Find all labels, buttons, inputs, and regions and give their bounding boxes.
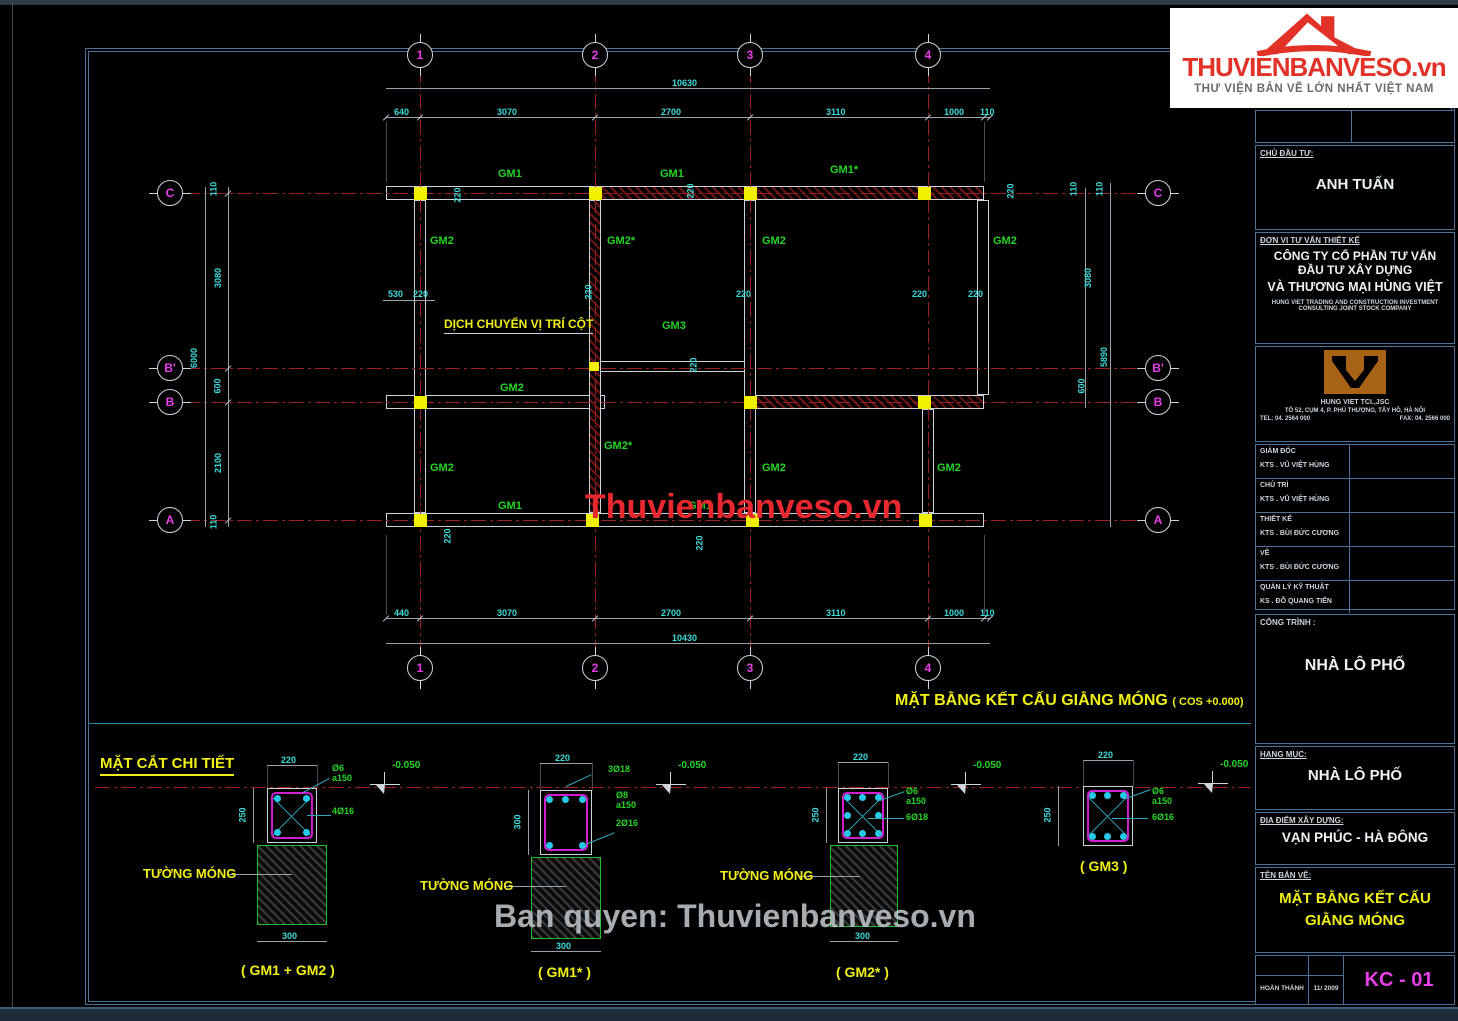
- beam-label: GM2: [500, 382, 524, 394]
- dim-line: [838, 762, 888, 763]
- grid-bubble-rowA-right: A: [1145, 507, 1171, 533]
- tb-drawing-name-section: TÊN BẢN VẼ: MẶT BẰNG KẾT CẤU GIẰNG MÓNG: [1255, 867, 1455, 953]
- grid-label: A: [1154, 513, 1163, 527]
- leader-line: [505, 886, 566, 887]
- watermark-bottom: Ban quyen: Thuvienbanveso.vn: [494, 898, 976, 935]
- rebar-dot: [844, 830, 851, 837]
- roof-icon: [1244, 10, 1384, 56]
- plan-title: MẶT BẰNG KẾT CẤU GIẰNG MÓNG ( COS +0.000…: [895, 692, 1244, 710]
- extension-line: [267, 765, 268, 788]
- detail-caption: ( GM3 ): [1080, 858, 1127, 874]
- rebar-dot: [274, 795, 281, 802]
- staff-name: KTS . BÙI ĐỨC CƯƠNG: [1260, 530, 1349, 537]
- grid-label: 1: [417, 661, 424, 675]
- extension-line: [984, 535, 985, 615]
- logo-tagline: THƯ VIỆN BẢN VẼ LỚN NHẤT VIỆT NAM: [1194, 83, 1434, 95]
- detail-caption: ( GM1* ): [538, 964, 591, 980]
- plan-detail-divider: [89, 723, 1251, 724]
- firm-fax: FAX: 04. 2566 000: [1400, 416, 1450, 422]
- dim-text: 110: [980, 608, 995, 618]
- signature-cell: [1350, 581, 1454, 613]
- grid-label: 3: [747, 48, 754, 62]
- dim-line-right-total: [1110, 183, 1111, 527]
- dim-line: [1058, 786, 1059, 846]
- beam-label: GM2: [430, 462, 454, 474]
- dim-text: 220: [281, 755, 296, 765]
- dim-line: [830, 941, 898, 942]
- extension-line: [540, 763, 541, 790]
- dim-text: 1000: [944, 107, 964, 117]
- dim-text: 2700: [661, 608, 681, 618]
- dim-text: 3080: [1083, 268, 1093, 288]
- dim-text: 220: [413, 289, 428, 299]
- column-marker: [919, 514, 932, 527]
- dim-line-left-total: [205, 187, 206, 527]
- rebar-dot: [1089, 833, 1096, 840]
- beam-label: GM2: [762, 462, 786, 474]
- watermark-center: Thuvienbanveso.vn: [585, 488, 902, 527]
- company-line-2: ĐẦU TƯ XÂY DỰNG: [1256, 263, 1454, 277]
- signature-cell: [1350, 445, 1454, 478]
- rebar-dot: [844, 794, 851, 801]
- dim-line: [1083, 760, 1133, 761]
- dim-text: 300: [282, 931, 297, 941]
- level-text: -0.050: [678, 760, 706, 771]
- beam-label: GM3: [662, 320, 686, 332]
- footer-subline: [1309, 956, 1343, 976]
- grid-bubble-col4-top: 4: [915, 42, 941, 68]
- level-mark-icon: [965, 772, 966, 785]
- grid-bubble-col2-top: 2: [582, 42, 608, 68]
- stirrup-text: Ø6: [906, 786, 918, 796]
- signature-cell: [1350, 547, 1454, 580]
- wall-label: TƯỜNG MÓNG: [720, 868, 813, 883]
- company-en-line-2: CONSULTING JOINT STOCK COMPANY: [1256, 306, 1454, 312]
- beam-label: GM1: [498, 500, 522, 512]
- completed-date: 11/ 2009: [1309, 985, 1343, 992]
- column-marker: [589, 362, 599, 371]
- location-label: ĐỊA ĐIỂM XÂY DỰNG:: [1256, 813, 1454, 825]
- beam-label: GM1: [498, 168, 522, 180]
- location-name: VẠN PHÚC - HÀ ĐÔNG: [1256, 830, 1454, 845]
- dim-line: [826, 788, 827, 843]
- rebar-dot: [546, 842, 553, 849]
- staff-row: CHỦ TRÌKTS . VŨ VIỆT HÙNG: [1256, 478, 1454, 512]
- tb-consultant-section: ĐƠN VỊ TƯ VẤN THIẾT KẾ CÔNG TY CỔ PHẦN T…: [1255, 232, 1455, 344]
- investor-name: ANH TUẤN: [1256, 176, 1454, 193]
- dim-text: 220: [736, 289, 751, 299]
- level-mark-icon: [1212, 771, 1213, 784]
- dim-text: 440: [394, 608, 409, 618]
- dim-text: 220: [453, 187, 463, 202]
- detail-caption: ( GM1 + GM2 ): [241, 962, 335, 978]
- stirrup-text: Ø8: [616, 790, 628, 800]
- level-mark-icon: [670, 772, 671, 785]
- beam-label: GM1: [660, 168, 684, 180]
- rebar-dot: [1104, 792, 1111, 799]
- sheet-code: KC - 01: [1365, 969, 1434, 992]
- grid-label: B': [1152, 361, 1164, 375]
- beam-label: GM2: [937, 462, 961, 474]
- footer-subline: [1256, 956, 1308, 976]
- staff-row: GIÁM ĐỐCKTS . VŨ VIỆT HÙNG: [1256, 445, 1454, 478]
- staff-role: THIẾT KẾ: [1260, 516, 1349, 523]
- tb-staff-table: GIÁM ĐỐCKTS . VŨ VIỆT HÙNG CHỦ TRÌKTS . …: [1255, 444, 1455, 610]
- item-name: NHÀ LÔ PHỐ: [1256, 767, 1454, 784]
- grid-bubble-col3-top: 3: [737, 42, 763, 68]
- grid-label: C: [166, 186, 175, 200]
- rebar-dot: [579, 796, 586, 803]
- logo-brand-main: THUVIENBANVESO: [1182, 52, 1411, 82]
- drawing-name-label: TÊN BẢN VẼ:: [1256, 868, 1454, 880]
- completed-cell: HOÀN THÀNH: [1256, 956, 1309, 1004]
- staff-name: KS . ĐỖ QUANG TIẾN: [1260, 598, 1349, 605]
- rebar-dot: [274, 829, 281, 836]
- date-cell: 11/ 2009: [1309, 956, 1344, 1004]
- firm-address: TỔ 52, CỤM 4, P. PHÚ THƯỢNG, TÂY HỒ, HÀ …: [1256, 408, 1454, 414]
- stirrup-spacing-text: a150: [332, 773, 352, 783]
- rebar-dot: [859, 830, 866, 837]
- grid-bubble-col2-bottom: 2: [582, 655, 608, 681]
- dim-text: 600: [213, 378, 223, 393]
- item-label: HẠNG MỤC:: [1256, 747, 1454, 759]
- title-block: CHỦ ĐẦU TƯ: ANH TUẤN ĐƠN VỊ TƯ VẤN THIẾT…: [1255, 110, 1455, 1005]
- axis-col-3: [750, 68, 751, 653]
- tb-top-cell-divider: [1351, 111, 1352, 142]
- grid-bubble-col4-bottom: 4: [915, 655, 941, 681]
- detail-caption: ( GM2* ): [836, 964, 889, 980]
- dim-text: 220: [968, 289, 983, 299]
- grid-bubble-rowC-right: C: [1145, 180, 1171, 206]
- dim-text: 3070: [497, 107, 517, 117]
- grid-bubble-rowBp-right: B': [1145, 355, 1171, 381]
- dim-line: [540, 763, 592, 764]
- grid-label: B: [166, 395, 175, 409]
- axis-col-2: [595, 68, 596, 653]
- wall-label: TƯỜNG MÓNG: [420, 878, 513, 893]
- grid-bubble-rowA-left: A: [157, 507, 183, 533]
- details-header: MẶT CẮT CHI TIẾT: [100, 755, 234, 776]
- firm-logo-icon: [1324, 350, 1386, 399]
- dim-text: 6000: [189, 348, 199, 368]
- rebar-dot: [1104, 833, 1111, 840]
- plan-title-text: MẶT BẰNG KẾT CẤU GIẰNG MÓNG: [895, 692, 1168, 709]
- axis-row-C: [185, 193, 1140, 194]
- stirrup-spacing-text: a150: [906, 796, 926, 806]
- column-marker: [414, 396, 427, 409]
- dim-text: 110: [980, 107, 995, 117]
- dim-text: 3110: [826, 107, 846, 117]
- dim-text: 300: [513, 814, 523, 829]
- left-edge-line: [12, 0, 13, 1007]
- grid-label: 2: [592, 48, 599, 62]
- dim-line: [257, 941, 327, 942]
- staff-name: KTS . BÙI ĐỨC CƯƠNG: [1260, 564, 1349, 571]
- extension-line: [386, 535, 387, 615]
- extension-line: [1133, 760, 1134, 786]
- stirrup-spacing-text: a150: [1152, 796, 1172, 806]
- column-marker: [414, 187, 427, 200]
- dim-line: [267, 765, 317, 766]
- dim-text: 220: [584, 284, 594, 299]
- level-text: -0.050: [1220, 759, 1248, 770]
- dim-line-530: [383, 300, 435, 301]
- dim-text: 220: [1006, 183, 1016, 198]
- tb-footer-row: HOÀN THÀNH 11/ 2009 KC - 01: [1255, 955, 1455, 1005]
- beam-label: GM2: [993, 235, 1017, 247]
- dim-text: 300: [556, 941, 571, 951]
- dim-text: 1000: [944, 608, 964, 618]
- dim-text: 5890: [1099, 347, 1109, 367]
- rebar-dot: [844, 812, 851, 819]
- extension-line: [838, 762, 839, 788]
- grid-bubble-rowC-left: C: [157, 180, 183, 206]
- bottom-bars-text: 2Ø16: [616, 818, 638, 828]
- dim-text: 220: [853, 752, 868, 762]
- rebar-dot: [875, 830, 882, 837]
- dim-line-bottom-total: [386, 643, 990, 644]
- beam-label: GM2: [762, 235, 786, 247]
- tb-firm-section: HUNG VIET TCI.,JSC TỔ 52, CỤM 4, P. PHÚ …: [1255, 346, 1455, 442]
- grid-bubble-rowBp-left: B': [157, 355, 183, 381]
- signature-cell: [1350, 513, 1454, 546]
- firm-short-name: HUNG VIET TCI.,JSC: [1256, 399, 1454, 406]
- grid-label: B': [164, 361, 176, 375]
- top-window-strip: [0, 0, 1458, 5]
- dim-text: 110: [208, 515, 218, 530]
- grid-label: B: [1154, 395, 1163, 409]
- stirrup-spacing-text: a150: [616, 800, 636, 810]
- rebar-dot: [546, 796, 553, 803]
- dim-line: [531, 951, 601, 952]
- grid-label: 4: [925, 661, 932, 675]
- dim-text: 250: [1043, 807, 1053, 822]
- dim-text: 3110: [826, 608, 846, 618]
- extension-line: [984, 122, 985, 182]
- tb-project-section: CÔNG TRÌNH : NHÀ LÔ PHỐ: [1255, 614, 1455, 744]
- level-mark-icon: [384, 772, 385, 785]
- beam-label: GM2*: [604, 440, 632, 452]
- column-marker: [414, 514, 427, 527]
- dim-line-right-segments: [1085, 188, 1086, 408]
- dim-text: 220: [555, 753, 570, 763]
- dim-line: [528, 790, 529, 855]
- dim-line: [253, 788, 254, 843]
- staff-role: QUẢN LÝ KỸ THUẬT: [1260, 584, 1349, 591]
- staff-role: VẼ: [1260, 550, 1349, 557]
- foundation-wall: [257, 845, 327, 925]
- company-line-1: CÔNG TY CỔ PHẦN TƯ VẤN: [1256, 249, 1454, 263]
- dim-text: 2700: [661, 107, 681, 117]
- firm-tel: TEL: 04. 2564 000: [1260, 416, 1310, 422]
- staff-row: QUẢN LÝ KỸ THUẬTKS . ĐỖ QUANG TIẾN: [1256, 580, 1454, 613]
- grid-bubble-col3-bottom: 3: [737, 655, 763, 681]
- tb-location-section: ĐỊA ĐIỂM XÂY DỰNG: VẠN PHÚC - HÀ ĐÔNG: [1255, 812, 1455, 865]
- rebar-dot: [562, 796, 569, 803]
- grid-label: C: [1154, 186, 1163, 200]
- dim-text: 220: [443, 528, 453, 543]
- project-label: CÔNG TRÌNH :: [1256, 615, 1454, 627]
- staff-row: VẼKTS . BÙI ĐỨC CƯƠNG: [1256, 546, 1454, 580]
- dim-line-top-total: [386, 88, 990, 89]
- beam-label: GM2: [430, 235, 454, 247]
- leader-line: [307, 815, 331, 816]
- level-text: -0.050: [392, 760, 420, 771]
- grid-label: 2: [592, 661, 599, 675]
- company-line-3: VÀ THƯƠNG MẠI HÙNG VIỆT: [1256, 280, 1454, 294]
- signature-cell: [1350, 479, 1454, 512]
- main-bars-text: 6Ø18: [906, 812, 928, 822]
- dim-line-bottom-segments: [386, 618, 990, 619]
- tb-top-row: [1255, 110, 1455, 143]
- dim-text: 110: [1068, 182, 1078, 197]
- project-name: NHÀ LÔ PHỐ: [1256, 657, 1454, 675]
- rebar-dot: [859, 794, 866, 801]
- grid-bubble-col1-bottom: 1: [407, 655, 433, 681]
- dim-text: 220: [686, 183, 696, 198]
- dim-text: 530: [388, 289, 403, 299]
- tb-item-section: HẠNG MỤC: NHÀ LÔ PHỐ: [1255, 746, 1455, 810]
- dim-text: 220: [1098, 750, 1113, 760]
- extension-line: [1083, 760, 1084, 786]
- axis-row-B: [185, 402, 1140, 403]
- grid-label: 1: [417, 48, 424, 62]
- beam-label: GM2*: [607, 235, 635, 247]
- rebar-dot: [1089, 792, 1096, 799]
- stirrup-text: Ø6: [1152, 786, 1164, 796]
- main-bars-text: 4Ø16: [332, 806, 354, 816]
- drawing-name-line-1: MẶT BẰNG KẾT CẤU: [1256, 890, 1454, 907]
- dim-text: 250: [238, 807, 248, 822]
- dim-text: 2100: [213, 453, 223, 473]
- logo-brand-text: THUVIENBANVESO.vn: [1182, 54, 1445, 80]
- staff-row: THIẾT KẾKTS . BÙI ĐỨC CƯƠNG: [1256, 512, 1454, 546]
- dim-text: 220: [912, 289, 927, 299]
- dim-text: 600: [1077, 378, 1087, 393]
- dim-text: 10430: [672, 633, 697, 643]
- completed-label: HOÀN THÀNH: [1256, 985, 1308, 992]
- leader-line: [868, 818, 904, 819]
- drawing-name-line-2: GIẰNG MÓNG: [1256, 912, 1454, 929]
- tb-investor-section: CHỦ ĐẦU TƯ: ANH TUẤN: [1255, 145, 1455, 230]
- extension-line: [592, 763, 593, 790]
- plan-title-cos: ( COS +0.000): [1172, 696, 1243, 708]
- extension-line: [386, 122, 387, 182]
- staff-name: KTS . VŨ VIỆT HÙNG: [1260, 462, 1349, 469]
- column-shift-note: DỊCH CHUYỂN VỊ TRÍ CỘT: [444, 317, 593, 334]
- investor-label: CHỦ ĐẦU TƯ:: [1256, 146, 1454, 158]
- dim-text: 10630: [672, 78, 697, 88]
- column-marker: [744, 396, 757, 409]
- level-text: -0.050: [973, 760, 1001, 771]
- axis-col-4: [928, 68, 929, 653]
- column-marker: [589, 187, 602, 200]
- dim-text: 640: [394, 107, 409, 117]
- axis-col-1: [420, 68, 421, 653]
- grid-label: 4: [925, 48, 932, 62]
- logo-brand-suffix: .vn: [1411, 52, 1446, 82]
- grid-label: A: [166, 513, 175, 527]
- column-marker: [744, 187, 757, 200]
- grid-bubble-col1-top: 1: [407, 42, 433, 68]
- staff-name: KTS . VŨ VIỆT HÙNG: [1260, 496, 1349, 503]
- dim-text: 110: [208, 182, 218, 197]
- dim-text: 220: [695, 535, 705, 550]
- grid-label: 3: [747, 661, 754, 675]
- dim-text: 110: [1094, 182, 1104, 197]
- staff-role: CHỦ TRÌ: [1260, 482, 1349, 489]
- axis-row-Bp: [185, 368, 1140, 369]
- rebar-dot: [303, 829, 310, 836]
- sheet-code-cell: KC - 01: [1344, 956, 1454, 1004]
- wall-label: TƯỜNG MÓNG: [143, 866, 236, 881]
- main-bars-text: 6Ø16: [1152, 812, 1174, 822]
- stirrup-text: Ø6: [332, 763, 344, 773]
- cad-viewer-page: { "logo": { "brand": "THUVIENBANVESO", "…: [0, 0, 1458, 1019]
- leader-line: [228, 874, 292, 875]
- consultant-label: ĐƠN VỊ TƯ VẤN THIẾT KẾ: [1256, 233, 1454, 245]
- column-marker: [918, 396, 931, 409]
- dim-text: 3070: [497, 608, 517, 618]
- extension-line: [888, 762, 889, 788]
- dim-line-top-segments: [386, 117, 990, 118]
- dim-text: 250: [811, 807, 821, 822]
- site-logo: THUVIENBANVESO.vn THƯ VIỆN BẢN VẼ LỚN NH…: [1170, 8, 1458, 108]
- dim-line-left-segments: [228, 187, 229, 527]
- beam-row-Bp: [591, 361, 750, 372]
- dim-text: 220: [689, 357, 699, 372]
- beam-label: GM1*: [830, 164, 858, 176]
- rebar-dot: [1120, 833, 1127, 840]
- column-marker: [918, 187, 931, 200]
- leader-line: [1112, 818, 1148, 819]
- rebar-dot: [303, 795, 310, 802]
- top-bars-text: 3Ø18: [608, 764, 630, 774]
- staff-role: GIÁM ĐỐC: [1260, 448, 1349, 455]
- grid-bubble-rowB-left: B: [157, 389, 183, 415]
- dim-text: 3080: [213, 268, 223, 288]
- grid-bubble-rowB-right: B: [1145, 389, 1171, 415]
